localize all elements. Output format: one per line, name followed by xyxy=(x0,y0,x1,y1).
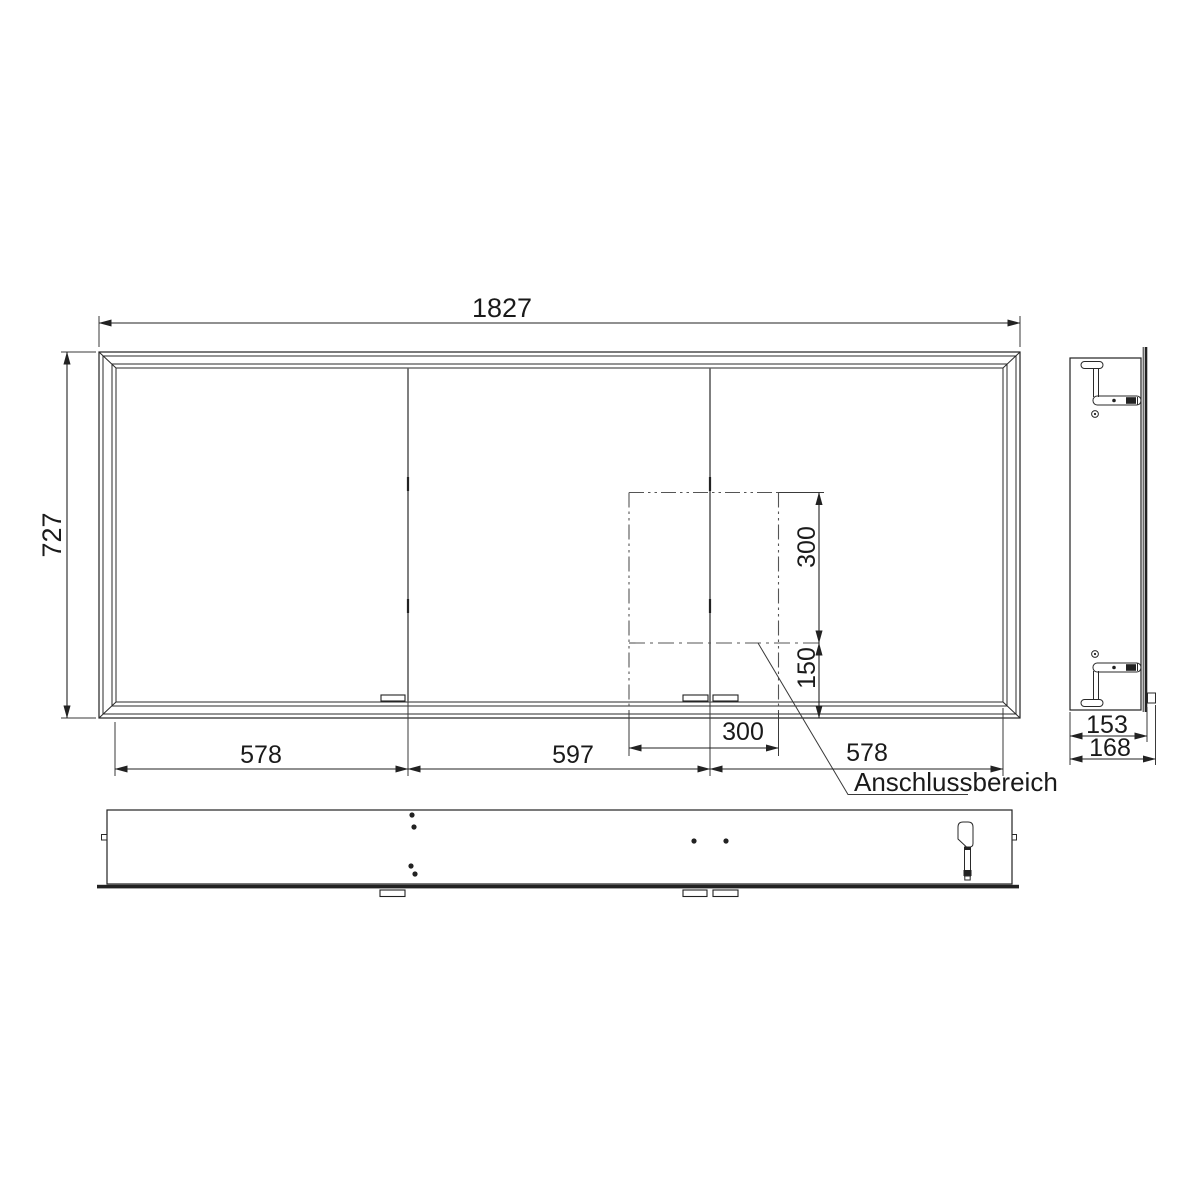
dim-connection-height-value: 300 xyxy=(793,526,821,568)
mounting-bracket-top xyxy=(1081,362,1141,418)
door-gap-marks xyxy=(407,477,711,613)
connection-area: Anschlussbereich xyxy=(629,493,1058,798)
side-body xyxy=(1070,358,1141,710)
dim-door-right-value: 578 xyxy=(846,739,888,767)
mirror-cabinet-dimension-drawing: Anschlussbereich 1827 727 578 597 xyxy=(0,0,1200,1200)
dim-door-middle-value: 597 xyxy=(552,741,594,769)
dim-depth-total-value: 168 xyxy=(1089,734,1131,762)
screw-holes xyxy=(408,812,728,876)
dimension-depth: 153 168 xyxy=(1070,705,1156,765)
plan-left-tab xyxy=(102,835,108,841)
miter-bottom-left xyxy=(99,702,116,718)
power-socket xyxy=(958,822,973,880)
dim-connection-offset-value: 150 xyxy=(793,647,821,689)
connection-area-label: Anschlussbereich xyxy=(854,767,1058,797)
front-view xyxy=(99,352,1020,718)
dimensions-front: 1827 727 578 597 578 300 xyxy=(37,293,1020,776)
dim-connection-width-value: 300 xyxy=(722,718,764,746)
dimension-connection-vertical: 300 150 xyxy=(793,493,821,719)
miter-top-left xyxy=(99,352,116,368)
plan-view xyxy=(97,810,1019,897)
dimension-total-width: 1827 xyxy=(99,293,1020,347)
miter-bottom-right xyxy=(1003,702,1020,718)
technical-drawing-page: Anschlussbereich 1827 727 578 597 xyxy=(0,0,1200,1200)
side-bottom-tab xyxy=(1148,693,1156,703)
plan-right-tab xyxy=(1012,835,1017,841)
dim-door-left-value: 578 xyxy=(240,741,282,769)
dimension-total-height: 727 xyxy=(37,352,96,718)
dimension-door-widths: 578 597 578 xyxy=(115,702,1003,776)
mirror-front-edge xyxy=(97,885,1019,889)
plan-body xyxy=(107,810,1012,884)
door-bottom-plates xyxy=(381,695,738,701)
dim-total-height-value: 727 xyxy=(37,512,67,557)
front-frame xyxy=(99,352,1020,718)
side-view: 153 168 xyxy=(1070,347,1156,765)
mounting-bracket-bottom xyxy=(1081,651,1141,707)
plan-door-plates xyxy=(380,890,738,897)
dim-total-width-value: 1827 xyxy=(472,293,532,323)
miter-top-right xyxy=(1003,352,1020,368)
dimension-connection-width: 300 xyxy=(629,718,779,748)
